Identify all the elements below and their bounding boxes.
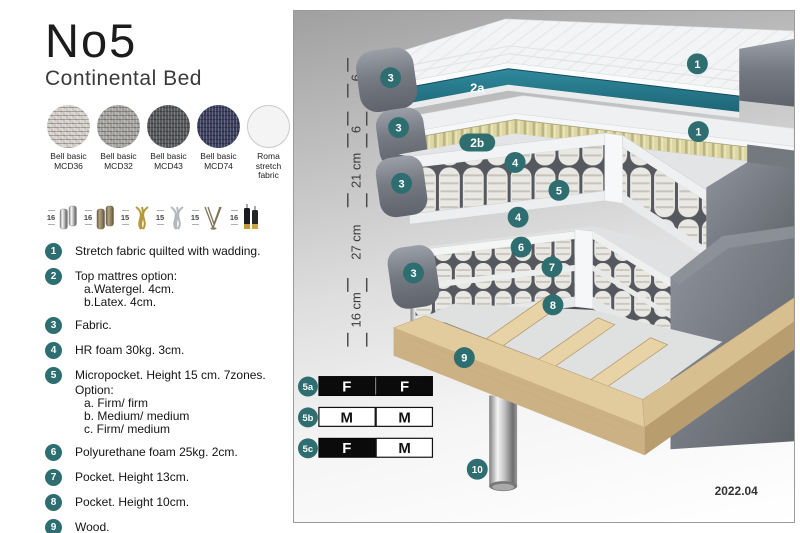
- leg-cylinder-bronze-icon: [95, 204, 117, 231]
- callout-2a: 2a: [470, 81, 485, 96]
- leg-option: 15: [119, 204, 152, 231]
- page-subtitle: Continental Bed: [45, 67, 297, 91]
- callout-4-upper: 4: [505, 152, 526, 173]
- leg-option: 16: [228, 204, 261, 231]
- svg-text:1: 1: [695, 127, 701, 139]
- fabric-swatch: Bell basicMCD32: [95, 105, 142, 181]
- legend-number-badge: 7: [45, 469, 62, 486]
- legend-item-5: 5 Micropocket. Height 15 cm. 7zones. Opt…: [45, 367, 297, 436]
- svg-text:1: 1: [694, 59, 700, 71]
- diagram-panel: 6 6 21 cm 27 cm 16 cm: [293, 10, 795, 523]
- svg-text:6: 6: [518, 242, 524, 254]
- fabric-swatch-circle: [147, 105, 190, 148]
- legend-item-4: 4 HR foam 30kg. 3cm.: [45, 342, 297, 359]
- callout-1-second: 1: [688, 121, 709, 142]
- leg-option: 16: [82, 204, 117, 231]
- callout-2b: 2b: [459, 134, 495, 152]
- spec-column: No5 Continental Bed Bell basicMCD36 Bell…: [45, 16, 297, 533]
- callout-3-second: 3: [388, 117, 409, 138]
- fabric-swatch-circle: [197, 105, 240, 148]
- svg-text:5: 5: [556, 185, 562, 197]
- svg-text:5c: 5c: [303, 444, 314, 455]
- firmness-cell: M: [398, 440, 410, 457]
- legend-list: 1 Stretch fabric quilted with wadding. 2…: [45, 243, 297, 533]
- firmness-table: 5a F F 5b M M 5c: [298, 377, 432, 459]
- legend-number-badge: 3: [45, 317, 62, 334]
- callout-3-third: 3: [391, 173, 412, 194]
- fabric-swatch: Romastretch fabric: [245, 105, 292, 181]
- version-stamp: 2022.04: [715, 484, 759, 498]
- page-title: No5: [45, 16, 297, 65]
- callout-9: 9: [454, 347, 475, 368]
- svg-text:3: 3: [388, 73, 394, 85]
- fabric-swatch-circle: [247, 105, 290, 148]
- firmness-row-5a: 5a F F: [298, 377, 432, 397]
- legend-number-badge: 9: [45, 519, 62, 533]
- leg-option: 15: [189, 204, 226, 231]
- fabric-swatches: Bell basicMCD36 Bell basicMCD32 Bell bas…: [45, 105, 297, 181]
- fabric-swatch: Bell basicMCD36: [45, 105, 92, 181]
- callout-4-lower: 4: [508, 207, 529, 228]
- svg-text:5a: 5a: [303, 382, 314, 393]
- scale-label: 27 cm: [349, 224, 364, 259]
- svg-text:7: 7: [549, 262, 555, 274]
- legend-number-badge: 6: [45, 444, 62, 461]
- legend-number-badge: 8: [45, 494, 62, 511]
- firmness-cell: F: [342, 378, 351, 395]
- fabric-swatch: Bell basicMCD43: [145, 105, 192, 181]
- svg-text:3: 3: [399, 178, 405, 190]
- firmness-cell: M: [398, 409, 410, 426]
- callout-6: 6: [511, 237, 532, 258]
- leg-option: 15: [154, 204, 187, 231]
- leg-twist-gold-icon: [132, 204, 152, 231]
- leg-options: 16 16 15 15: [45, 191, 297, 231]
- firmness-cell: M: [341, 409, 353, 426]
- leg-hairpin-icon: [202, 204, 226, 231]
- callout-8: 8: [543, 294, 564, 315]
- legend-number-badge: 5: [45, 367, 62, 384]
- callout-1-top: 1: [687, 53, 708, 74]
- leg-twist-silver-icon: [167, 204, 187, 231]
- top-mattress-right-cap: [739, 39, 794, 107]
- legend-item-7: 7 Pocket. Height 13cm.: [45, 469, 297, 486]
- callout-7: 7: [542, 257, 563, 278]
- legend-number-badge: 1: [45, 243, 62, 260]
- svg-text:2b: 2b: [470, 136, 484, 150]
- leg-cylinder-black-gold-icon: [241, 204, 261, 231]
- scale-label: 21 cm: [349, 153, 364, 188]
- svg-text:3: 3: [396, 123, 402, 135]
- leg-cylinder-chrome-icon: [58, 204, 80, 231]
- fabric-swatch-circle: [97, 105, 140, 148]
- legend-item-6: 6 Polyurethane foam 25kg. 2cm.: [45, 444, 297, 461]
- callout-3-fourth: 3: [403, 263, 424, 284]
- scale-labels: 6 6 21 cm 27 cm 16 cm: [349, 74, 364, 327]
- scale-label: 6: [349, 126, 364, 133]
- firmness-cell: F: [342, 440, 351, 457]
- firmness-cell: F: [400, 378, 409, 395]
- svg-text:3: 3: [410, 268, 416, 280]
- page: No5 Continental Bed Bell basicMCD36 Bell…: [0, 0, 800, 533]
- legend-item-2: 2 Top mattres option: a.Watergel. 4cm. b…: [45, 268, 297, 310]
- fabric-swatch-circle: [47, 105, 90, 148]
- firmness-row-5b: 5b M M: [298, 407, 432, 427]
- callout-10: 10: [467, 459, 488, 480]
- legend-item-3: 3 Fabric.: [45, 317, 297, 334]
- scale-label: 16 cm: [349, 292, 364, 327]
- svg-text:4: 4: [512, 157, 519, 169]
- svg-text:9: 9: [461, 353, 467, 365]
- callout-3-top: 3: [380, 67, 401, 88]
- legend-item-8: 8 Pocket. Height 10cm.: [45, 494, 297, 511]
- svg-text:8: 8: [550, 300, 556, 312]
- bed-cutaway-diagram: 6 6 21 cm 27 cm 16 cm: [294, 11, 794, 522]
- svg-text:4: 4: [515, 212, 522, 224]
- fabric-swatch: Bell basicMCD74: [195, 105, 242, 181]
- legend-item-9: 9 Wood.: [45, 519, 297, 533]
- leg-option: 16: [45, 204, 80, 231]
- legend-number-badge: 2: [45, 268, 62, 285]
- firmness-row-5c: 5c F M: [298, 438, 432, 458]
- legend-item-1: 1 Stretch fabric quilted with wadding.: [45, 243, 297, 260]
- svg-text:5b: 5b: [302, 413, 313, 424]
- metal-leg-front: [489, 395, 517, 491]
- legend-number-badge: 4: [45, 342, 62, 359]
- callout-5: 5: [548, 180, 569, 201]
- svg-text:10: 10: [472, 465, 484, 476]
